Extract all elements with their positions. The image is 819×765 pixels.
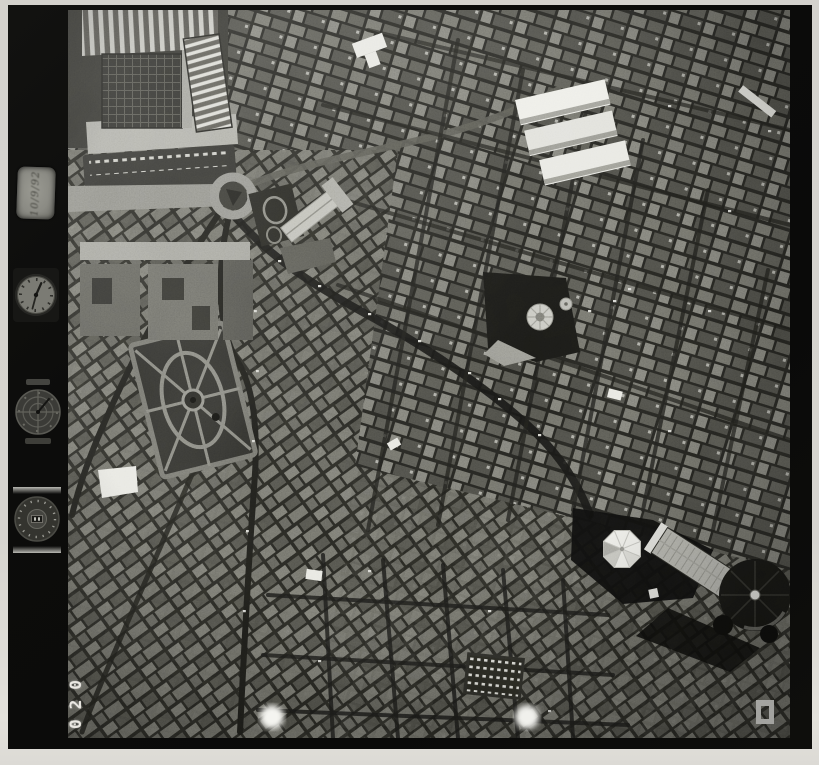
clock-dial-icon	[13, 268, 59, 322]
vignette	[68, 10, 790, 738]
film-frame: 10/9/92	[8, 5, 812, 749]
aerial-photo	[68, 10, 790, 738]
frame-number: 020	[60, 653, 90, 745]
aerial-photo-image	[68, 10, 790, 738]
data-plate: 10/9/92	[16, 166, 56, 219]
scanned-photo-sheet: 10/9/92	[0, 0, 819, 765]
data-plate-text: 10/9/92	[30, 170, 43, 216]
altimeter-dial-icon	[13, 378, 63, 446]
fiducial-mark-right	[515, 705, 539, 729]
frame-counter-dial-icon	[11, 485, 63, 555]
fiducial-mark-left	[260, 705, 284, 729]
frame-number-digits: 020	[66, 670, 85, 729]
